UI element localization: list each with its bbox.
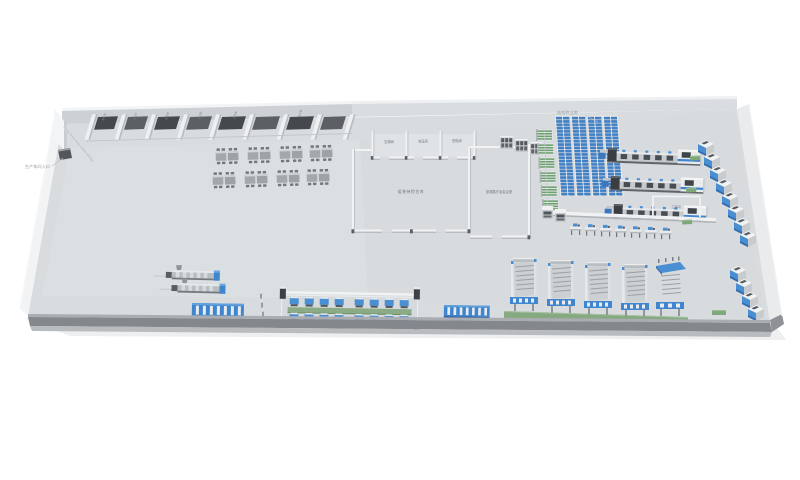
utility-room-label: 空调间 — [384, 139, 394, 144]
small-machine — [555, 209, 566, 222]
shelf-unit — [500, 136, 513, 149]
asrs-annotation: 结构件立库 — [557, 109, 578, 116]
tool-room-label: 工具间 — [671, 204, 680, 209]
utility-rooms: 空调间 空压间 配电间 — [371, 131, 477, 160]
exhibition-label: 参观展厅及会议室 — [486, 189, 513, 194]
blue-flat-machine — [444, 305, 490, 318]
utility-room-label: 配电间 — [452, 138, 462, 143]
entrance-annotation: 生产车间入口 — [25, 163, 50, 170]
small-machine — [542, 206, 553, 219]
utility-room-label: 空压间 — [418, 139, 428, 144]
factory-3d-render: 更衣室 卫生间 休息室 办公室 资料室 备件室 — [0, 0, 800, 480]
warehouse-label: 组装待检仓库 — [398, 189, 424, 194]
shelf-unit — [515, 139, 528, 152]
